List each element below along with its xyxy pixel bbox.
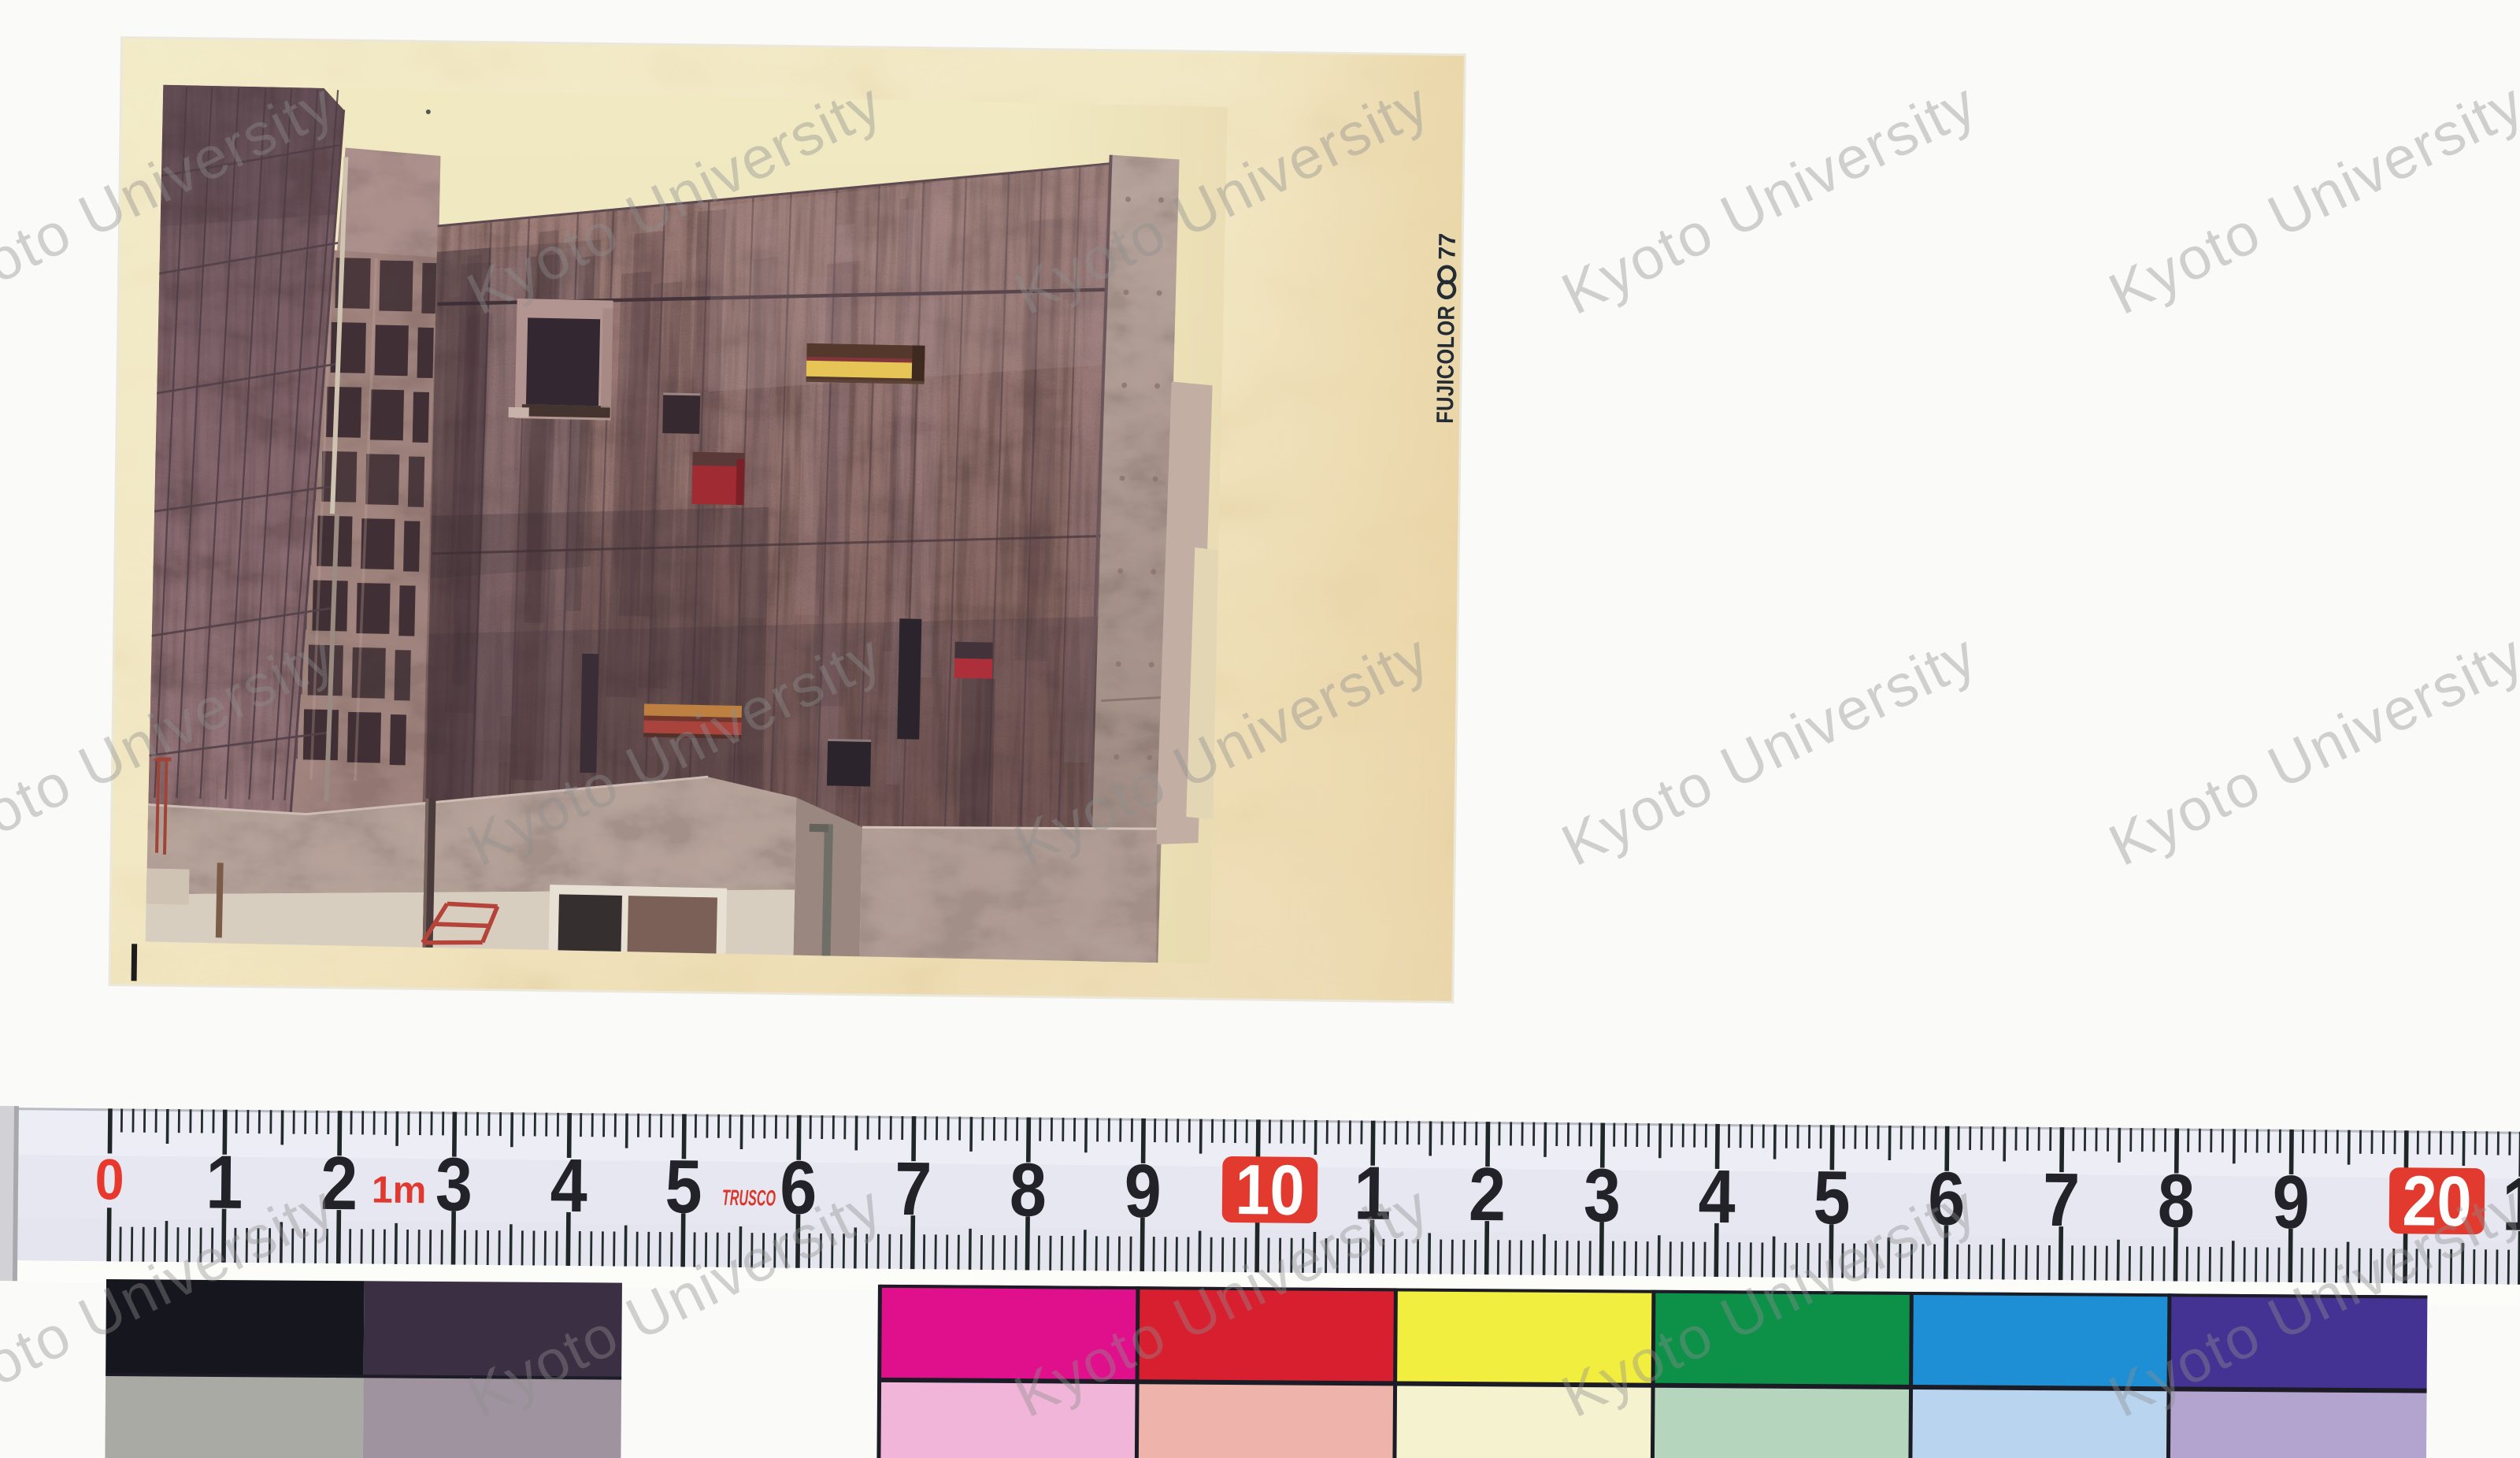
svg-text:9: 9 bbox=[2272, 1160, 2310, 1245]
svg-text:3: 3 bbox=[1583, 1153, 1621, 1237]
svg-text:3: 3 bbox=[435, 1142, 472, 1226]
svg-text:FUJICOLOR: FUJICOLOR bbox=[1432, 306, 1460, 424]
svg-text:8: 8 bbox=[1009, 1148, 1047, 1232]
svg-text:10: 10 bbox=[1235, 1151, 1305, 1230]
svg-text:1m: 1m bbox=[372, 1170, 427, 1212]
svg-text:2: 2 bbox=[1469, 1152, 1506, 1237]
svg-text:7: 7 bbox=[2043, 1158, 2081, 1242]
svg-text:8: 8 bbox=[2157, 1159, 2195, 1243]
svg-text:4: 4 bbox=[1698, 1155, 1736, 1239]
svg-text:TRUSCO: TRUSCO bbox=[722, 1185, 776, 1211]
svg-text:7: 7 bbox=[895, 1147, 932, 1231]
svg-text:5: 5 bbox=[665, 1145, 702, 1229]
svg-text:9: 9 bbox=[1124, 1149, 1162, 1234]
svg-text:0: 0 bbox=[94, 1148, 124, 1211]
svg-text:77: 77 bbox=[1435, 233, 1461, 260]
svg-text:4: 4 bbox=[550, 1144, 587, 1228]
